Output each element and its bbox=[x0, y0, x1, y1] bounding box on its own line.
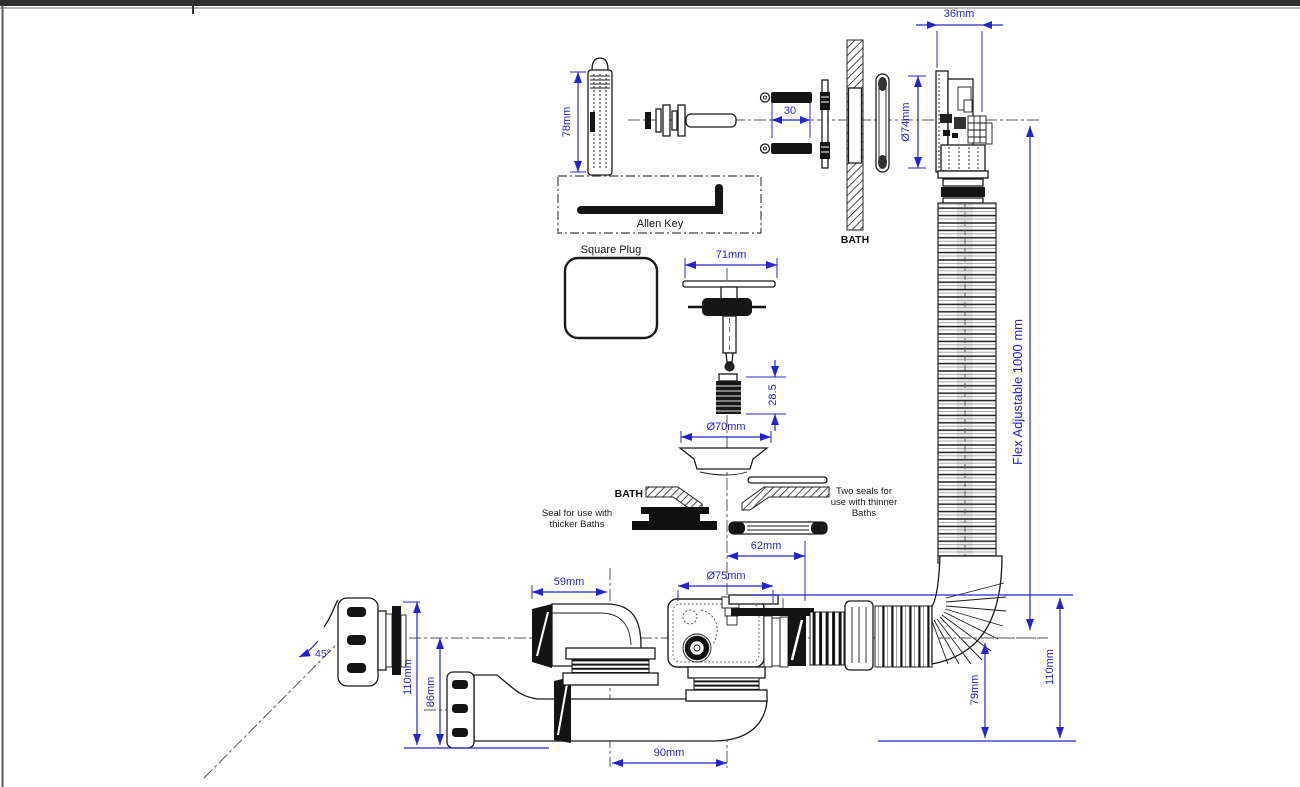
seal-thinner-label-line3: Baths bbox=[852, 508, 877, 519]
trap-top-flange bbox=[729, 595, 778, 604]
dim-79: 79mm bbox=[969, 643, 985, 738]
fixing-screws bbox=[761, 92, 813, 154]
dim-79-label: 79mm bbox=[969, 675, 981, 706]
dim-30-label: 30 bbox=[784, 105, 796, 117]
pin-latch bbox=[590, 112, 595, 132]
strainer-flange bbox=[680, 448, 767, 475]
dim-74: Ø74mm bbox=[900, 76, 926, 168]
dim-90-label: 90mm bbox=[654, 747, 685, 759]
upper-thin-seal bbox=[748, 477, 827, 483]
square-plug-label: Square Plug bbox=[581, 244, 642, 256]
allen-key-label: Allen Key bbox=[637, 218, 684, 230]
frame-top-bar bbox=[0, 0, 1300, 6]
technical-drawing-page: 52mm 52mm Ø50mm Ø40mm bbox=[0, 0, 1300, 787]
threaded-insert bbox=[716, 374, 741, 414]
hose-adaptor bbox=[875, 606, 932, 667]
dim-110-left-label: 110mm bbox=[402, 659, 414, 695]
outlet-ribbed-seal bbox=[810, 612, 844, 665]
pin-cap bbox=[592, 58, 608, 70]
bath-waste-overflow-drawing: 52mm 52mm Ø50mm Ø40mm bbox=[0, 0, 1300, 787]
dim-71-label: 71mm bbox=[716, 249, 747, 261]
square-plug bbox=[565, 258, 657, 338]
seal-thinner-label-line2: use with thinner bbox=[831, 497, 898, 508]
dim-75-label: Ø75mm bbox=[706, 570, 745, 582]
angled-pipe-centerline bbox=[204, 640, 341, 778]
dim-86-label: 86mm bbox=[425, 677, 437, 708]
dim-74-label: Ø74mm bbox=[900, 102, 912, 141]
dim-30: 30 bbox=[772, 102, 810, 138]
seal-thicker-label-line1: Seal for use with bbox=[542, 508, 612, 519]
seal-thicker-label-line2: thicker Baths bbox=[550, 519, 605, 530]
dim-70-label: Ø70mm bbox=[706, 421, 745, 433]
dim-28-5: 28.5 bbox=[746, 360, 786, 431]
trap-collar bbox=[686, 667, 767, 701]
dim-86: 86mm bbox=[425, 638, 440, 745]
dim-59: 59mm bbox=[532, 576, 607, 599]
wall-sleeve bbox=[849, 88, 862, 163]
thin-bath-seals bbox=[729, 522, 827, 534]
nut-ring bbox=[378, 611, 386, 670]
dim-45: 45° bbox=[299, 641, 331, 660]
dim-70: Ø70mm bbox=[681, 421, 771, 443]
inlet-collar bbox=[563, 648, 658, 685]
dim-78-label: 78mm bbox=[561, 107, 573, 138]
overflow-body bbox=[936, 71, 992, 203]
allen-key bbox=[581, 188, 719, 210]
flex-adjustable-label: Flex Adjustable 1000 mm bbox=[1010, 319, 1025, 465]
seal-thinner-label-line1: Two seals for bbox=[836, 486, 892, 497]
outlet-washer bbox=[392, 606, 401, 675]
bath-plug bbox=[683, 281, 775, 371]
dim-28-5-label: 28.5 bbox=[767, 384, 779, 405]
plug-and-seal-parts bbox=[558, 176, 829, 534]
dim-59-label: 59mm bbox=[554, 576, 585, 588]
dim-62-label: 62mm bbox=[751, 540, 782, 552]
overflow-gasket bbox=[876, 74, 889, 172]
dim-71: 71mm bbox=[685, 249, 777, 278]
bath-section-label: BATH bbox=[615, 488, 643, 500]
corrugated-overflow-hose bbox=[938, 203, 996, 563]
backplate bbox=[820, 80, 830, 168]
dim-45-label: 45° bbox=[315, 648, 331, 660]
thick-bath-seal bbox=[632, 507, 717, 530]
hose-bend bbox=[932, 556, 1006, 664]
dim-36-label: 36mm bbox=[944, 8, 975, 20]
angled-outlet-pipe: 52mm 52mm Ø50mm Ø40mm bbox=[0, 235, 406, 686]
dim-flex: Flex Adjustable 1000 mm bbox=[1010, 126, 1030, 630]
bath-section-right bbox=[742, 487, 829, 510]
dim-110-right: 110mm bbox=[1044, 598, 1060, 738]
bath-trap-assembly bbox=[447, 556, 1048, 748]
small-washer bbox=[645, 112, 651, 129]
dim-110-right-label: 110mm bbox=[1044, 649, 1056, 685]
bath-wall-label: BATH bbox=[841, 234, 869, 246]
dim-78: 78mm bbox=[561, 72, 586, 172]
dim-90: 90mm bbox=[612, 747, 727, 763]
spindle bbox=[656, 105, 736, 136]
